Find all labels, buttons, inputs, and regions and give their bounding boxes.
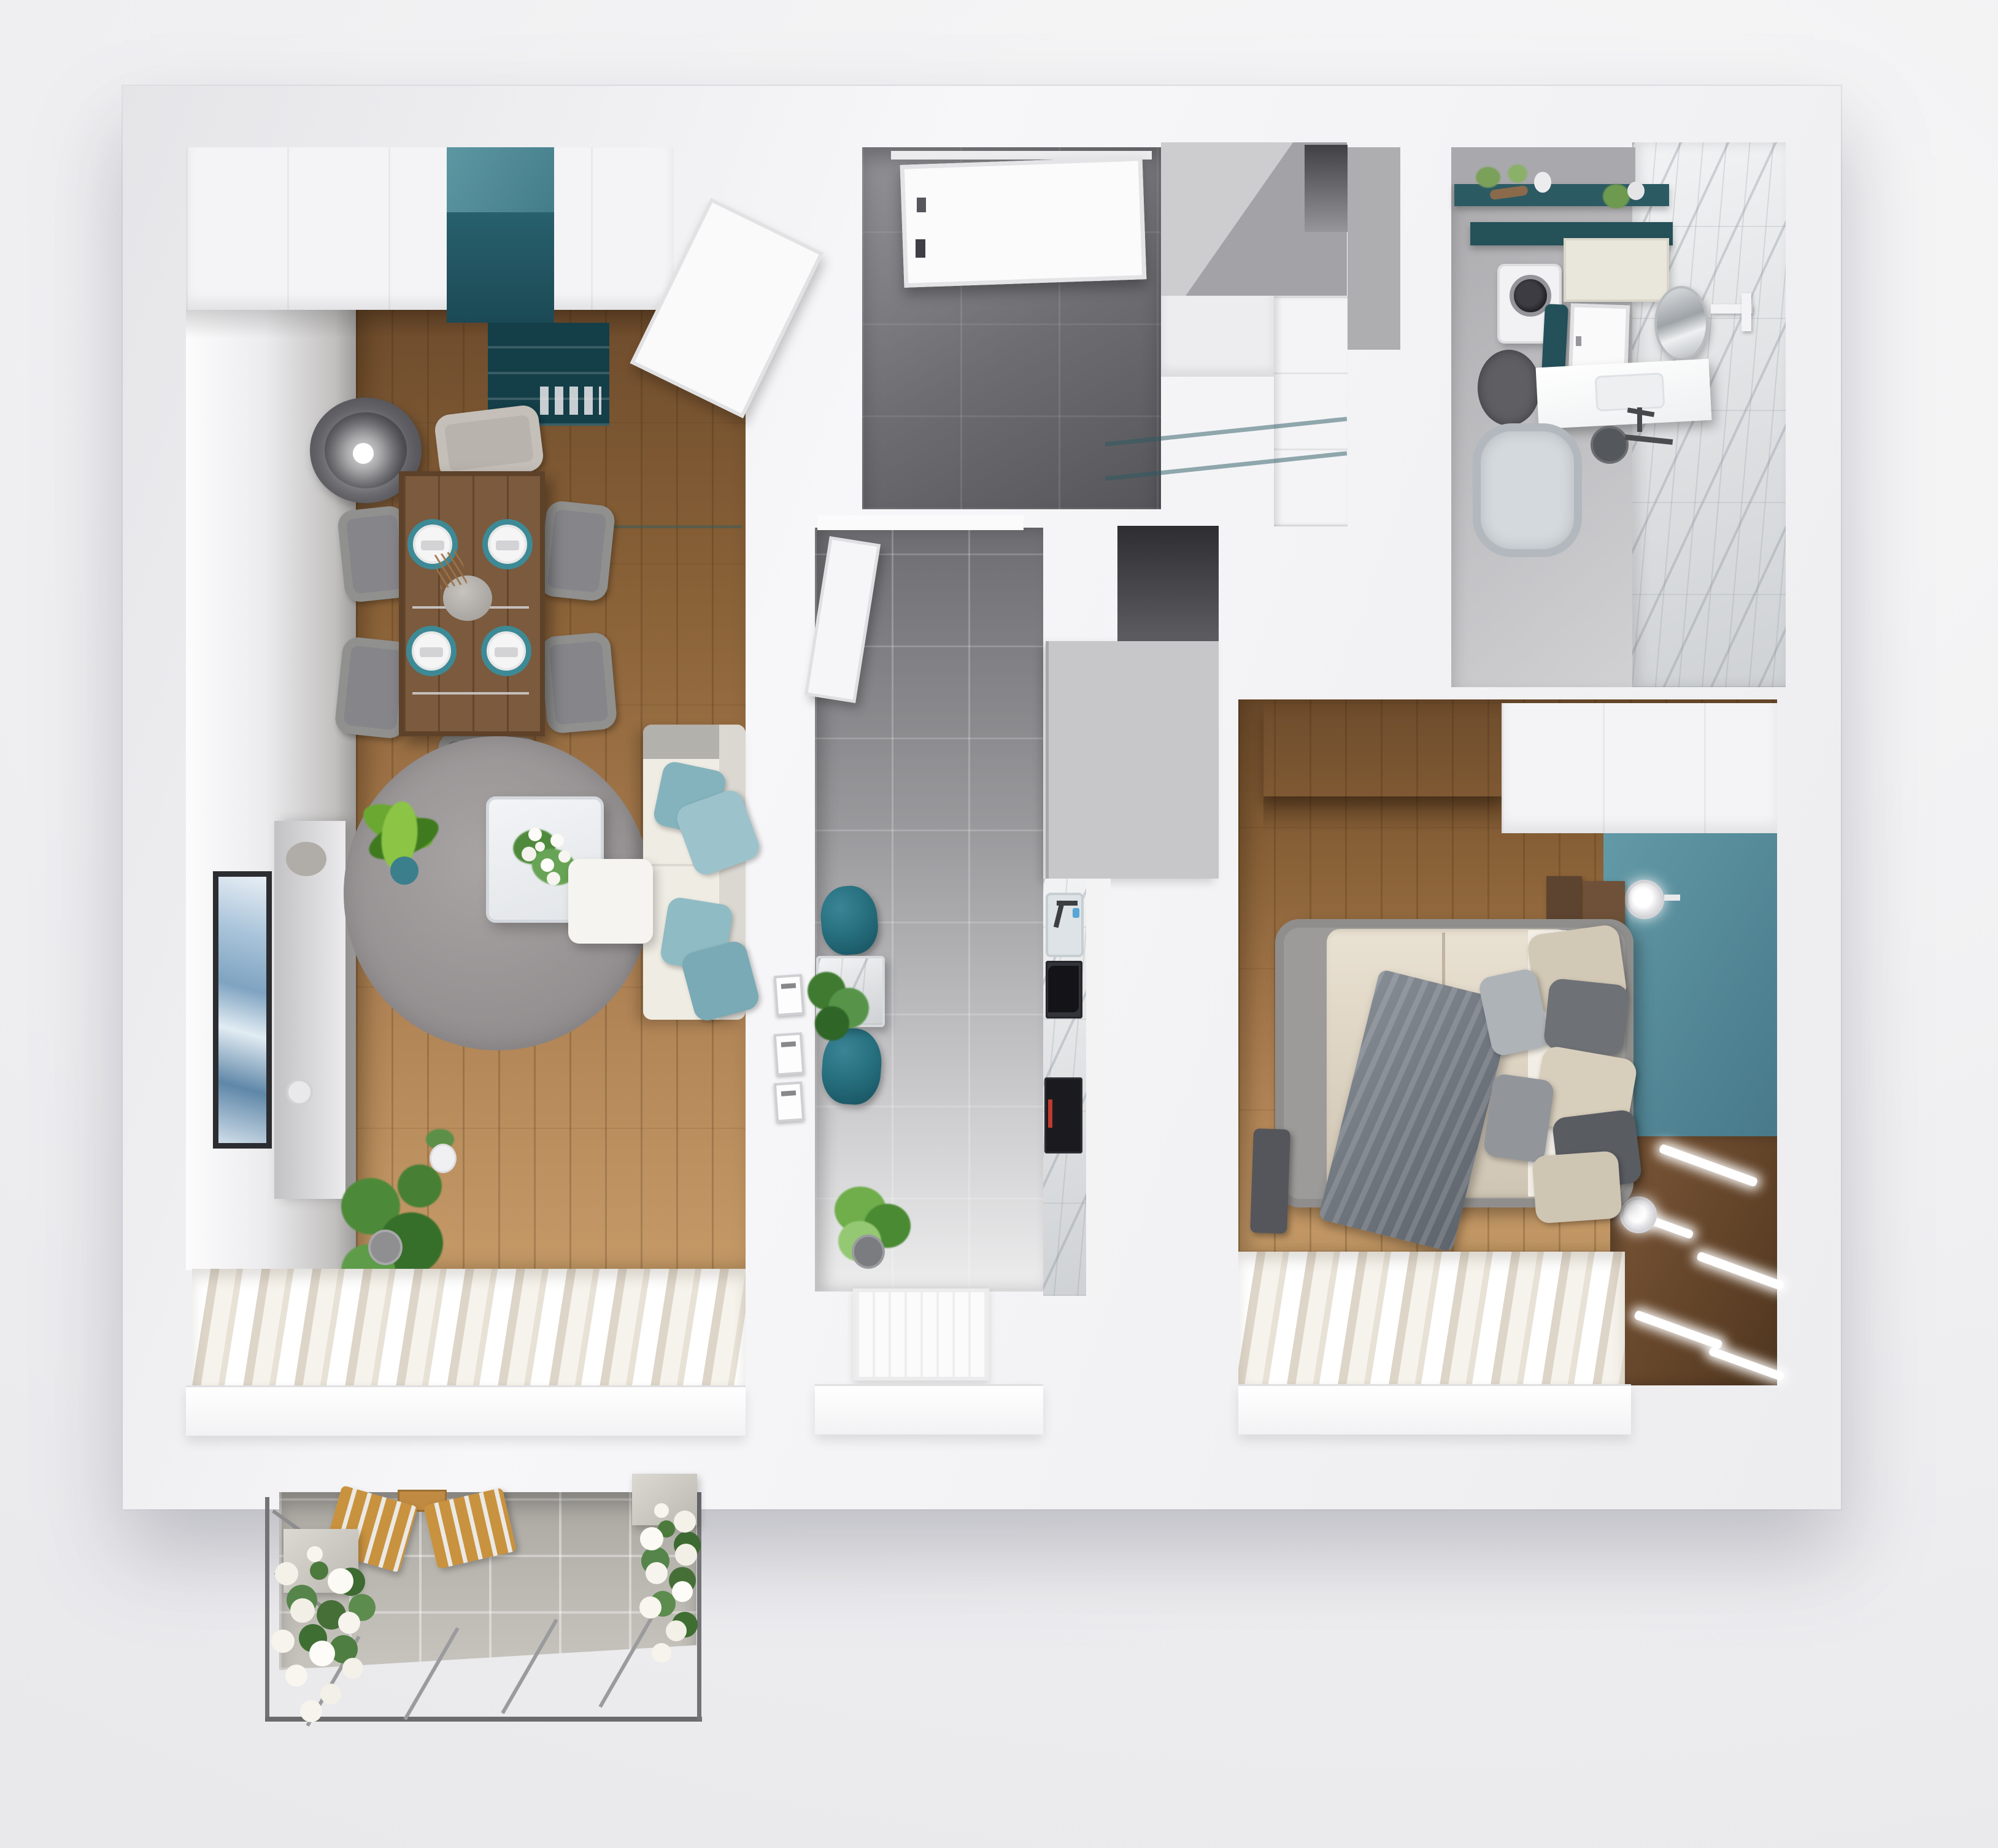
living-wardrobe-row [186,147,674,310]
pillow [1532,1150,1622,1223]
sink-bottle [1073,908,1079,918]
balcony-railing-bottom [265,1717,702,1722]
oven-indicator [1048,1099,1052,1128]
bedroom-wall-sconce [1620,1196,1657,1233]
balcony-railing-right [697,1492,701,1720]
hall-mirror-niche [1305,145,1348,232]
bedroom-curtains [1238,1252,1625,1384]
wall-art-seascape [213,871,272,1149]
shelf-pot [1534,172,1551,193]
table-monstera [815,1006,849,1041]
kitchen-wall-frame [774,1032,805,1076]
hall-closet-front [1161,296,1274,377]
round-mirror [1654,286,1708,361]
kitchen-wall-frame [774,974,804,1016]
dining-chair-right-1 [538,500,616,603]
bedroom-window-sill [1238,1384,1631,1434]
kitchen-door-jamb [817,515,1024,530]
ottoman [568,859,653,944]
monstera-leaf [398,1165,442,1207]
bedroom-white-cabinets [1502,703,1777,833]
teal-cabinet-top [447,147,554,212]
planter-leaves [310,1561,328,1580]
hall-east-wall-patch [1348,147,1400,350]
pillow [1543,978,1629,1057]
bathroom-cream-cabinet [1564,238,1669,302]
kitchen-wall-frame [774,1081,804,1122]
dining-chair-right-2 [539,631,617,734]
console-bowl [286,1079,313,1106]
floor-lamp-bulb [353,443,374,464]
shelf-plant [1476,167,1500,188]
teal-cabinet-front [447,212,554,323]
kitchen-plant-pot [852,1234,885,1269]
kitchen-tall-units-top [1046,641,1219,879]
bookshelf-dishes [540,387,601,415]
cutlery [412,692,529,695]
shelf-cactus [1603,184,1630,209]
planter-leaves [658,1520,675,1538]
balcony-railing-left [265,1497,269,1720]
sconce-arm [1664,895,1680,901]
bathtub [1473,423,1582,557]
teal-towel [1541,304,1568,375]
floor-plan-render [0,0,1998,1848]
yucca-pot [390,857,418,885]
sink-basin [1595,372,1665,412]
bathroom-round-rug [1478,350,1540,426]
bedroom-dark-wardrobe [1263,704,1502,796]
entrance-door [900,156,1147,288]
bedroom-wall-sconce [1625,880,1664,919]
entrance-door-handle [916,239,925,258]
pillow [1483,1073,1555,1164]
place-setting [482,519,533,569]
bouquet-flowers [535,842,545,852]
entrance-door-hinge [917,198,926,212]
monstera-pot [368,1230,403,1265]
planter-flowers [654,1503,669,1518]
kitchen-window-sill [815,1384,1043,1434]
place-setting [481,626,531,676]
planter-flowers [307,1546,323,1562]
bathroom-door-handle [1576,336,1581,346]
kitchen-runner-rug [853,1288,989,1380]
place-setting [406,626,457,676]
living-curtains [192,1269,746,1385]
balcony-planter-left [283,1529,358,1593]
shower-head [1591,426,1629,464]
shelf-pot [1627,182,1645,200]
towel-bar [1741,293,1751,331]
console-decor [286,842,326,876]
cooktop [1046,961,1082,1018]
living-window-sill [186,1385,746,1436]
tv-console [274,821,345,1199]
sink-faucet-bath [1637,407,1642,432]
wardrobe-shadow [1263,796,1502,833]
small-plant-pot [430,1144,457,1173]
bedroom-door-edge [1103,526,1117,654]
kitchen-counter-front [1086,879,1111,1296]
dining-chair-top [433,404,545,482]
balcony-planter-right [632,1474,697,1525]
bedroom-doorway-niche [1116,526,1219,654]
sink-faucet [1057,901,1078,906]
bedroom-bench [1250,1128,1290,1234]
hall-sliding-doors [1274,296,1348,526]
shelf-plant [1508,164,1527,183]
